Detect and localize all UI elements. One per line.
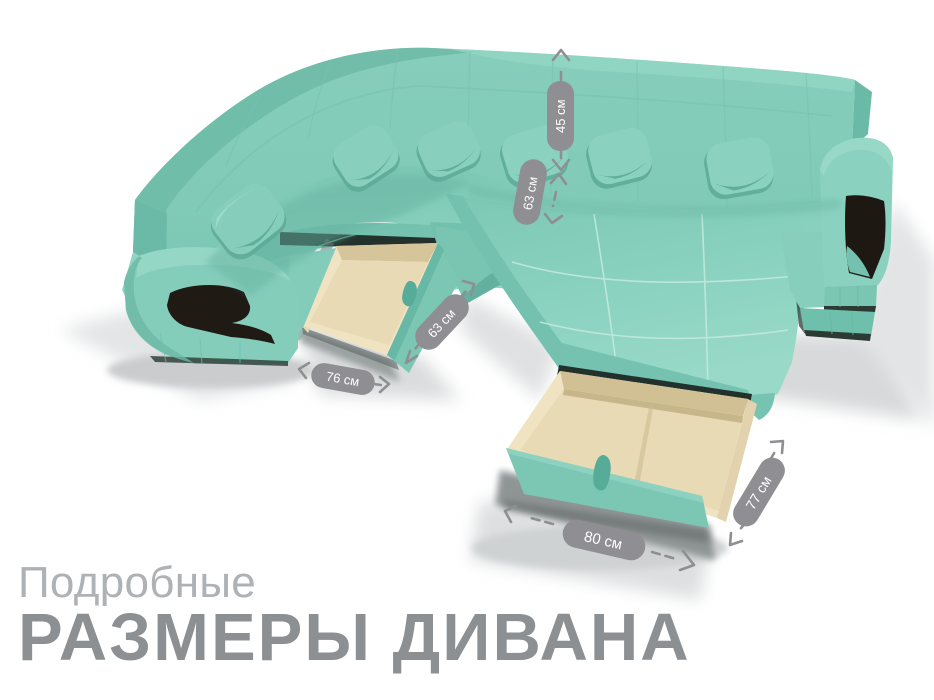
- svg-text:45 см: 45 см: [553, 99, 568, 133]
